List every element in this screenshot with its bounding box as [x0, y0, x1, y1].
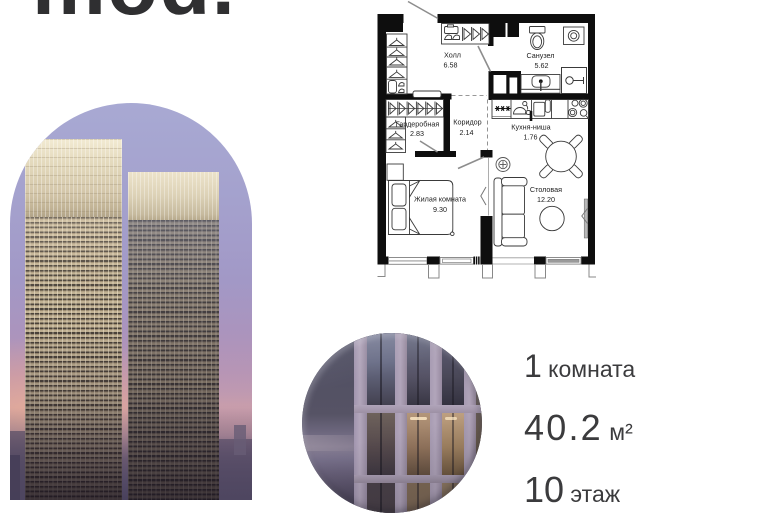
svg-text:6.58: 6.58 — [444, 61, 458, 70]
svg-text:1.76: 1.76 — [524, 133, 538, 142]
svg-text:5.62: 5.62 — [535, 61, 549, 70]
svg-text:9.30: 9.30 — [433, 205, 447, 214]
svg-text:Холл: Холл — [444, 51, 461, 60]
svg-text:Столовая: Столовая — [530, 185, 562, 194]
svg-text:Жилая комната: Жилая комната — [414, 194, 466, 203]
svg-text:2.83: 2.83 — [410, 129, 424, 138]
svg-text:Коридор: Коридор — [453, 118, 481, 127]
svg-text:Санузел: Санузел — [527, 51, 555, 60]
svg-text:Кухня-ниша: Кухня-ниша — [511, 123, 550, 132]
svg-text:2.14: 2.14 — [460, 128, 474, 137]
svg-text:12.20: 12.20 — [537, 195, 555, 204]
svg-text:Гардеробная: Гардеробная — [396, 119, 440, 128]
